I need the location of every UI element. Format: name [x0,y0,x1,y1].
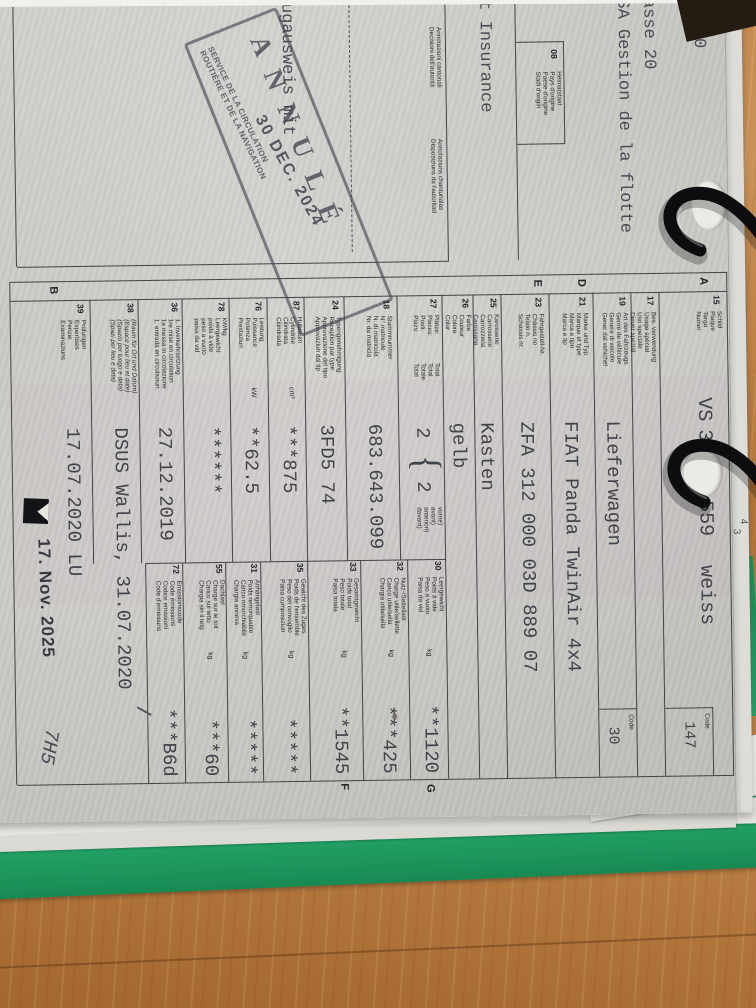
field-value-30: **1120 [418,659,442,773]
field-unit: kg [340,650,347,658]
field-label: Prestaziun [236,318,243,348]
annotations-bottom-border [12,5,17,267]
field-value-25: Kasten [475,422,498,491]
field-value-18: 683.643.099 [363,424,387,550]
section-letter-b: B [47,286,59,294]
field-label: Chargia utila/sella [377,578,385,629]
field-value-36: 27.12.2019 [153,427,177,541]
seats-front-value: 2 [412,481,434,493]
field-value-76: **62.5 [239,425,262,494]
field-label: Schassis nr. [516,314,523,349]
field-number-25: 25 [488,298,498,308]
heimatstaat-box-border [517,143,565,145]
photo-scene: 2 4 3 72.00 asse 20 SA Gestion de la flo… [0,0,756,1008]
field-number-26: 26 [460,298,470,308]
plate-color-word: weiss [694,565,718,625]
ring-hole [692,180,728,230]
code-value-147: 147 [680,721,697,748]
field-label: Plaque [708,311,715,331]
field-unit: kW [250,387,257,397]
annotations-top-border [444,0,449,261]
registration-document: 2 4 3 72.00 asse 20 SA Gestion de la flo… [0,0,753,823]
seats-brace: { [404,455,448,472]
field-number-27: 27 [428,299,438,309]
table-border-line [712,707,714,775]
field-number-87: 87 [291,301,301,311]
field-label: Paisa da vid [415,577,422,612]
field-number-39: 39 [76,304,86,314]
annotations-label-it: Decisioni dell'autorità [427,27,435,87]
code-label: Code [627,714,634,730]
plate-number-b: 559 [693,500,717,536]
heimatstaat-label: Stadi d'origin [533,71,540,108]
ring-hole [684,448,724,498]
field-label: Colur [443,315,450,330]
field-number-33: 33 [348,562,358,572]
field-label: Paisa totala [330,578,337,611]
field-value-39: 17.07.2020 LU [61,428,85,577]
field-label: Plazs: [411,315,418,333]
seats-front-label: davant) [414,507,421,528]
field-value-87: ***875 [277,425,300,494]
handwritten-check [137,706,152,716]
section-letter-f: F [338,783,350,790]
section-letter-e: E [531,279,543,287]
field-unit: kg [206,652,213,660]
paper-smudge [392,714,397,720]
field-value-55: ***60 [199,662,223,776]
plate-canton: VS [692,397,715,421]
field-number-36: 36 [169,303,179,313]
field-label: (Spazi per lieu e data) [108,319,116,382]
table-border-line [17,775,734,786]
seats-total-label: Total [411,363,418,377]
section-letter-g: G [424,784,436,793]
table-border-line [599,708,637,710]
code-value-30: 30 [604,726,621,744]
page-number: 3 [731,529,742,535]
field-label: Paisa cumposiziun [277,579,285,632]
section-letter-a: A [697,277,709,285]
field-label: Nr. da matricla [364,316,371,357]
code-label: Code [703,713,710,729]
header-street: asse 20 [638,0,658,70]
field-value-31: ***** [237,661,261,775]
field-label: Examinaziuns [58,320,65,360]
field-number-30: 30 [433,561,443,571]
field-number-17: 17 [645,296,655,306]
field-value-33: **1545 [329,660,353,774]
field-value-24: 3FD5 74 [315,424,338,504]
field-number-08: 08 [549,49,559,59]
seats-total-value: 2 [411,427,433,439]
field-number-21: 21 [577,297,587,307]
field-value-78: ****** [201,426,224,495]
section-letter-d: D [575,279,587,287]
field-number-76: 76 [253,301,263,311]
annotations-label-rm: Disposiziuns da l'autoritad [428,139,436,213]
field-number-35: 35 [295,563,305,573]
field-value-72: ***B6d [157,663,181,777]
field-number-32: 32 [395,561,405,571]
field-unit: kg [241,652,248,660]
field-unit: kg [287,651,294,659]
header-holder-name: SA Gestion de la flotte [612,0,634,233]
heimatstaat-box-border [563,41,566,143]
field-value-21: FIAT Panda TwinAir 4x4 [559,421,585,672]
field-number-72: 72 [171,565,181,575]
field-label: Gener dal vehichel [600,313,608,366]
field-label: Cilindrada [274,317,281,346]
document-page: 2 4 3 72.00 asse 20 SA Gestion de la flo… [0,0,753,823]
field-number-15: 15 [711,295,721,305]
field-number-24: 24 [330,300,340,310]
field-label: Marca e tip [560,313,567,345]
field-label: paisa da vid [192,318,199,352]
field-unit: cm³ [288,387,295,399]
field-number-23: 23 [533,297,543,307]
heimatstaat-box-border [516,41,564,43]
field-number-55: 55 [214,564,224,574]
seats-total-label: Totale [418,363,425,380]
header-insurance: t Insurance [474,0,495,112]
field-label: Numer [694,311,701,330]
handwritten-note: 7H5 [34,727,62,766]
field-unit: kg [425,649,432,657]
annotations-right-border [17,261,449,268]
field-label: Places: [425,315,432,336]
field-label: 1. entrada en circulaziun [152,319,160,389]
field-value-23: ZFA 312 000 03D 889 07 [515,422,541,673]
field-value-35: ***** [277,661,301,775]
header-rule [514,0,519,260]
field-value-38: DSUS Wallis, 31.07.2020 [109,427,135,690]
field-number-38: 38 [126,303,136,313]
inspection-flag-icon [23,498,49,524]
field-value-19: Lieferwagen [601,420,625,546]
field-label: Code d'emissiuns [153,581,161,631]
page-number: 4 [738,519,749,525]
field-number-19: 19 [617,296,627,306]
field-number-78: 78 [216,302,226,312]
field-label: Chargia annexa [231,580,239,625]
field-number-31: 31 [249,563,259,573]
field-unit: kg [387,650,394,658]
table-border-line [665,707,713,709]
field-label: Chargia sin il tetg [196,580,204,629]
field-label: Approvaziun dal tip [313,317,321,371]
field-number-18: 18 [381,300,391,310]
field-label: Colore [450,315,457,334]
field-value-26: gelb [447,423,470,469]
